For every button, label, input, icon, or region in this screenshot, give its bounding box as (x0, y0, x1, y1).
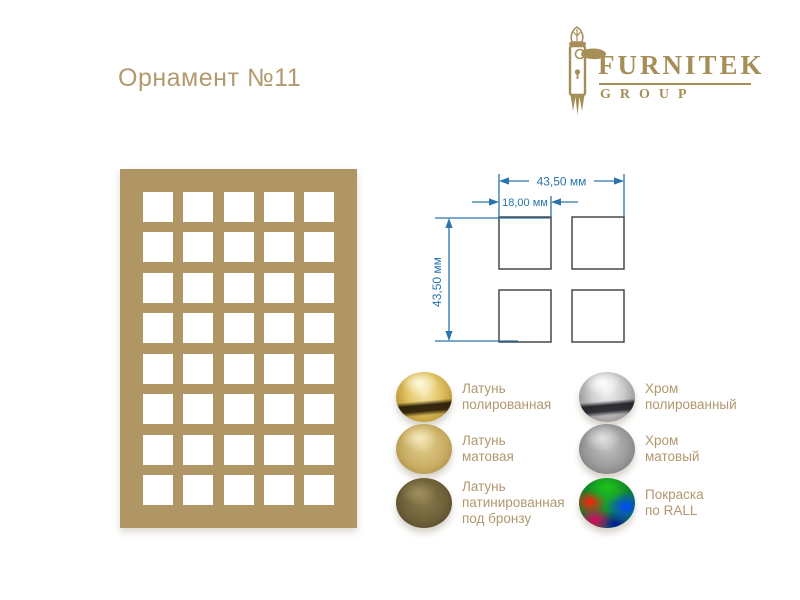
ornament-hole (304, 394, 334, 424)
ornament-hole (143, 313, 173, 343)
ornament-hole (304, 354, 334, 384)
brass-polished-swatch (396, 372, 452, 422)
ornament-hole (264, 475, 294, 505)
dimension-diagram: 43,50 мм 18,00 мм 43,50 мм (420, 160, 650, 360)
ornament-hole (304, 313, 334, 343)
dim-width-label: 43,50 мм (537, 175, 587, 189)
finish-label: Покраска по RALL (645, 487, 704, 519)
logo-name: FURNITEK (598, 52, 765, 79)
finish-chrome-matte: Хром матовый (579, 424, 699, 474)
finish-chrome-polished: Хром полированный (579, 372, 737, 422)
ornament-hole (183, 475, 213, 505)
slide-canvas: Орнамент №11 FURNITEK GROUP (0, 0, 800, 600)
dimension-squares (499, 217, 624, 342)
ral-paint-swatch (579, 478, 635, 528)
ornament-hole (183, 435, 213, 465)
ornament-hole (143, 435, 173, 465)
ornament-hole (224, 273, 254, 303)
chrome-matte-swatch (579, 424, 635, 474)
ornament-hole (224, 354, 254, 384)
ornament-hole (304, 232, 334, 262)
finish-brass-patinated: Латунь патинированная под бронзу (396, 478, 565, 528)
logo-rule (599, 83, 751, 85)
ornament-hole (143, 273, 173, 303)
ornament-hole (304, 273, 334, 303)
finish-brass-matte: Латунь матовая (396, 424, 514, 474)
finish-ral-paint: Покраска по RALL (579, 478, 704, 528)
page-title: Орнамент №11 (118, 64, 301, 93)
ornament-hole (264, 354, 294, 384)
finish-label: Латунь полированная (462, 381, 551, 413)
finish-label: Латунь матовая (462, 433, 514, 465)
ornament-hole (143, 232, 173, 262)
ornament-hole (183, 273, 213, 303)
ornament-hole (304, 192, 334, 222)
ornament-pattern (120, 169, 357, 528)
ornament-hole (143, 192, 173, 222)
ornament-hole (183, 354, 213, 384)
brass-patinated-swatch (396, 478, 452, 528)
ornament-hole (183, 192, 213, 222)
finish-label: Хром полированный (645, 381, 737, 413)
ornament-hole (304, 475, 334, 505)
ornament-hole (224, 232, 254, 262)
ornament-hole (264, 435, 294, 465)
ornament-hole (224, 192, 254, 222)
ornament-hole (264, 313, 294, 343)
ornament-hole (264, 394, 294, 424)
ornament-hole (183, 313, 213, 343)
ornament-hole (224, 394, 254, 424)
ornament-hole (143, 394, 173, 424)
logo-subtitle: GROUP (600, 88, 765, 102)
ornament-hole (183, 394, 213, 424)
finish-brass-polished: Латунь полированная (396, 372, 551, 422)
ornament-hole (224, 475, 254, 505)
chrome-polished-swatch (579, 372, 635, 422)
dim-spacing-label: 18,00 мм (502, 197, 548, 209)
ornament-hole (224, 435, 254, 465)
ornament-hole (143, 354, 173, 384)
finish-label: Хром матовый (645, 433, 699, 465)
brass-matte-swatch (396, 424, 452, 474)
ornament-hole (264, 232, 294, 262)
ornament-hole (143, 475, 173, 505)
ornament-hole (264, 192, 294, 222)
ornament-hole (304, 435, 334, 465)
ornament-hole (264, 273, 294, 303)
finish-label: Латунь патинированная под бронзу (462, 479, 565, 527)
dim-height-label: 43,50 мм (430, 257, 444, 307)
ornament-hole (183, 232, 213, 262)
ornament-hole (224, 313, 254, 343)
logo: FURNITEK GROUP (558, 26, 765, 116)
